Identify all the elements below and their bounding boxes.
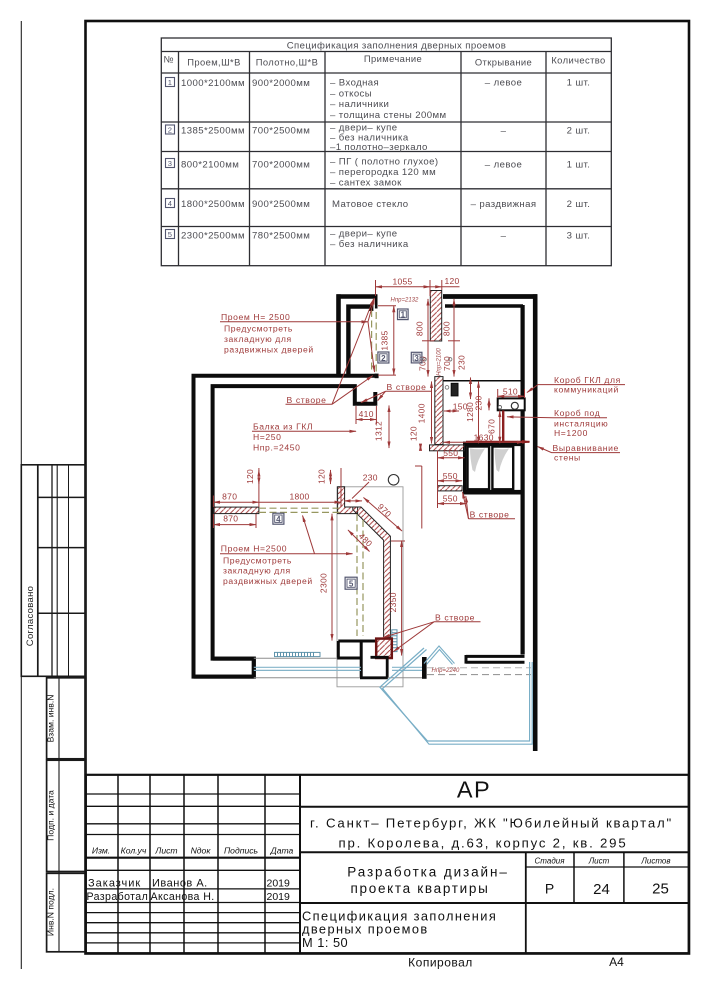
- svg-text:120: 120: [245, 469, 255, 484]
- svg-text:2350: 2350: [388, 592, 398, 612]
- svg-text:закладную для: закладную для: [223, 566, 291, 576]
- svg-text:230: 230: [457, 355, 467, 370]
- svg-text:780*2500мм: 780*2500мм: [252, 231, 310, 242]
- svg-text:120: 120: [409, 426, 419, 441]
- svg-text:Предусмотреть: Предусмотреть: [223, 555, 292, 565]
- svg-text:4: 4: [168, 199, 173, 208]
- svg-text:Проем Н= 2500: Проем Н= 2500: [221, 312, 290, 322]
- svg-text:3 шт.: 3 шт.: [567, 231, 591, 242]
- svg-text:инсталяцию: инсталяцию: [554, 418, 608, 428]
- svg-text:2019: 2019: [267, 878, 291, 890]
- svg-text:Лист: Лист: [154, 846, 177, 856]
- svg-text:800: 800: [414, 321, 424, 336]
- svg-text:1800: 1800: [289, 492, 309, 502]
- svg-text:4: 4: [276, 515, 281, 524]
- svg-text:раздвижных дверей: раздвижных дверей: [223, 576, 313, 586]
- svg-text:1 шт.: 1 шт.: [567, 78, 591, 89]
- svg-text:коммуникаций: коммуникаций: [554, 385, 619, 395]
- svg-text:2 шт.: 2 шт.: [567, 199, 591, 210]
- svg-text:800*2100мм: 800*2100мм: [181, 160, 239, 171]
- svg-text:Р: Р: [545, 881, 554, 897]
- svg-text:АР: АР: [457, 777, 491, 803]
- svg-text:В створе: В створе: [387, 382, 427, 392]
- svg-text:900*2000мм: 900*2000мм: [252, 78, 310, 89]
- svg-text:пр. Королева, д.63, корпус: пр. Королева, д.63, корпус 2, кв. 295: [339, 836, 628, 851]
- svg-text:1385*2500мм: 1385*2500мм: [181, 126, 245, 137]
- svg-text:Проем,Ш*В: Проем,Ш*В: [187, 57, 241, 68]
- svg-text:900*2500мм: 900*2500мм: [252, 199, 310, 210]
- svg-text:А4: А4: [609, 955, 624, 969]
- svg-text:1000*2100мм: 1000*2100мм: [181, 78, 245, 89]
- svg-text:120: 120: [444, 276, 459, 286]
- svg-text:230: 230: [363, 473, 378, 483]
- svg-text:Листов: Листов: [640, 857, 670, 866]
- svg-text:Н=1200: Н=1200: [554, 428, 588, 438]
- svg-text:Нпр.=2450: Нпр.=2450: [253, 442, 301, 452]
- svg-text:Спецификация заполнения двер: Спецификация заполнения дверных проемов: [287, 41, 507, 52]
- svg-text:870: 870: [223, 513, 238, 523]
- svg-text:700*2500мм: 700*2500мм: [252, 126, 310, 137]
- svg-text:М 1: 50: М 1: 50: [302, 935, 348, 950]
- svg-text:раздвижных дверей: раздвижных дверей: [224, 344, 314, 354]
- svg-text:–1 полотно–зеркало: –1 полотно–зеркало: [330, 142, 428, 153]
- svg-text:Разработал: Разработал: [87, 891, 149, 903]
- svg-text:Предусмотреть: Предусмотреть: [224, 323, 293, 333]
- svg-text:– ПГ ( полотно глухое): – ПГ ( полотно глухое): [330, 157, 439, 168]
- svg-text:550: 550: [443, 494, 458, 504]
- svg-text:870: 870: [222, 492, 237, 502]
- svg-text:Нпр=2100: Нпр=2100: [436, 347, 442, 375]
- svg-text:Балка из ГКЛ: Балка из ГКЛ: [253, 421, 313, 431]
- svg-text:– Входная: – Входная: [330, 78, 379, 89]
- svg-text:Аксанова Н.: Аксанова Н.: [151, 891, 215, 903]
- svg-text:Стадия: Стадия: [535, 857, 566, 866]
- svg-text:700: 700: [442, 356, 452, 371]
- svg-text:550: 550: [443, 448, 458, 458]
- svg-text:– сантех замок: – сантех замок: [330, 178, 402, 189]
- svg-text:2 шт.: 2 шт.: [567, 126, 591, 137]
- svg-text:стены: стены: [554, 453, 581, 463]
- svg-text:120: 120: [317, 469, 327, 484]
- svg-text:Количество: Количество: [551, 55, 605, 66]
- svg-text:проекта квартиры: проекта квартиры: [351, 881, 490, 896]
- svg-text:Согласовано: Согласовано: [25, 586, 36, 646]
- svg-text:Н=250: Н=250: [253, 432, 282, 442]
- svg-text:Иванов А.: Иванов А.: [152, 878, 208, 890]
- svg-text:700*2000мм: 700*2000мм: [252, 160, 310, 171]
- svg-text:Изм.: Изм.: [92, 846, 110, 856]
- svg-text:– левое: – левое: [485, 78, 522, 89]
- svg-text:Заказчик: Заказчик: [88, 878, 141, 890]
- svg-text:– левое: – левое: [485, 160, 522, 171]
- svg-text:1 шт.: 1 шт.: [567, 160, 591, 171]
- svg-text:Короб ГКЛ для: Короб ГКЛ для: [554, 375, 621, 385]
- svg-text:– без наличника: – без наличника: [330, 239, 409, 250]
- svg-text:– перегородка 120 мм: – перегородка 120 мм: [330, 167, 436, 178]
- svg-text:Дата: Дата: [270, 846, 294, 856]
- svg-text:510: 510: [503, 386, 518, 396]
- svg-text:– откосы: – откосы: [330, 89, 372, 100]
- svg-text:1: 1: [401, 311, 406, 320]
- svg-text:2300: 2300: [319, 573, 329, 593]
- svg-text:3: 3: [168, 159, 173, 168]
- svg-text:5: 5: [349, 580, 354, 589]
- svg-text:В створе: В створе: [470, 509, 510, 519]
- svg-text:Разработка дизайн–: Разработка дизайн–: [347, 865, 509, 880]
- svg-text:№: №: [164, 54, 174, 65]
- svg-text:Полотно,Ш*В: Полотно,Ш*В: [256, 57, 319, 68]
- svg-text:Нпр=2132: Нпр=2132: [391, 298, 419, 304]
- svg-text:2: 2: [168, 126, 173, 135]
- svg-text:1400: 1400: [417, 403, 427, 423]
- svg-text:В створе: В створе: [435, 612, 475, 622]
- svg-text:Nдок: Nдок: [191, 846, 212, 856]
- svg-text:1800*2500мм: 1800*2500мм: [181, 199, 245, 210]
- svg-text:1280: 1280: [465, 402, 475, 422]
- svg-text:1: 1: [168, 78, 173, 87]
- svg-text:2019: 2019: [267, 891, 291, 903]
- svg-text:5: 5: [168, 230, 173, 239]
- svg-text:1385: 1385: [380, 330, 390, 350]
- svg-text:Матовое стекло: Матовое стекло: [332, 199, 409, 210]
- svg-text:230: 230: [474, 395, 484, 410]
- svg-text:Примечание: Примечание: [364, 53, 422, 64]
- svg-text:410: 410: [359, 409, 374, 419]
- svg-text:–: –: [501, 231, 507, 242]
- svg-text:Лист: Лист: [588, 857, 610, 866]
- svg-text:Инв.N подл.: Инв.N подл.: [46, 888, 56, 936]
- svg-text:1055: 1055: [392, 276, 412, 286]
- svg-text:– наличники: – наличники: [330, 99, 389, 110]
- svg-text:Нпр=2240: Нпр=2240: [432, 668, 460, 674]
- svg-text:800: 800: [442, 321, 452, 336]
- svg-text:Подп. и дата: Подп. и дата: [46, 790, 56, 841]
- svg-text:25: 25: [652, 881, 669, 898]
- svg-text:Проем Н=2500: Проем Н=2500: [221, 544, 287, 554]
- svg-text:1630: 1630: [474, 432, 494, 442]
- svg-text:г. Санкт– Петербург, ЖК "Юбил: г. Санкт– Петербург, ЖК "Юбилейный кварт…: [310, 816, 673, 831]
- svg-text:Взам. инв.N: Взам. инв.N: [46, 695, 56, 743]
- svg-text:Короб под: Короб под: [554, 408, 600, 418]
- svg-text:– двери– купе: – двери– купе: [330, 229, 397, 240]
- svg-text:Копировал: Копировал: [408, 956, 473, 970]
- svg-text:Подпись: Подпись: [224, 846, 259, 856]
- svg-text:Открывание: Открывание: [475, 57, 532, 68]
- svg-text:Кол.уч: Кол.уч: [121, 846, 147, 856]
- svg-text:3: 3: [414, 354, 419, 363]
- svg-text:2: 2: [381, 354, 386, 363]
- svg-text:550: 550: [443, 471, 458, 481]
- svg-text:Выравнивание: Выравнивание: [553, 443, 619, 453]
- svg-text:24: 24: [593, 881, 610, 898]
- svg-text:2300*2500мм: 2300*2500мм: [181, 231, 245, 242]
- svg-text:закладную для: закладную для: [224, 334, 292, 344]
- svg-text:–: –: [501, 126, 507, 137]
- svg-text:1312: 1312: [373, 421, 383, 441]
- svg-text:В створе: В створе: [287, 395, 327, 405]
- svg-text:– толщина стены 200мм: – толщина стены 200мм: [330, 110, 446, 121]
- svg-text:– раздвижная: – раздвижная: [471, 199, 537, 210]
